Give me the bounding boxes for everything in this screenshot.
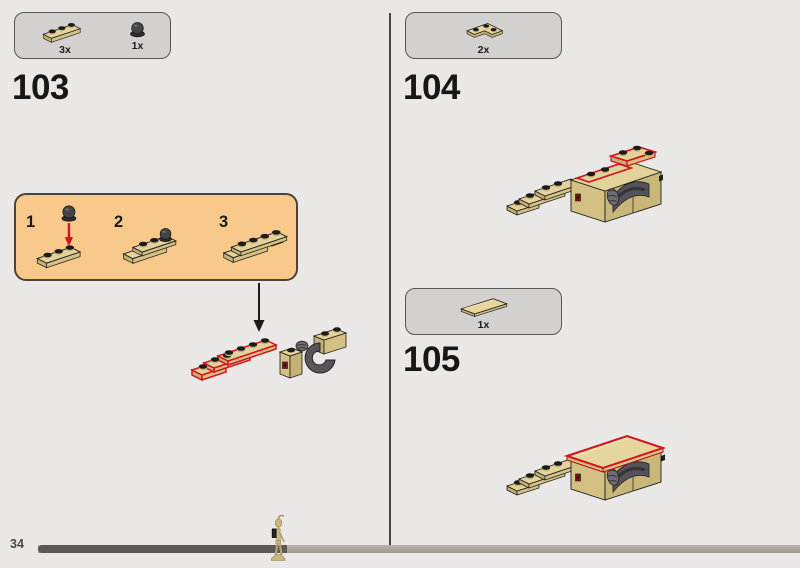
substep-2-illustration [116,205,202,273]
step-number-104: 104 [403,70,460,105]
progress-fill [38,545,287,553]
parts-box-103: 3x 1x [14,12,171,59]
plate-1x3-tan-icon [37,15,93,44]
part-item: 2x [460,16,508,56]
assembly-104-illustration [503,140,668,245]
corner-plate-2x2-tan-icon [460,16,508,44]
part-count: 1x [132,41,144,52]
parts-box-105: 1x [405,288,562,335]
part-count: 3x [59,45,71,56]
assembly-103-illustration [188,310,348,398]
part-item: 1x [456,292,512,331]
assembly-105-illustration [503,418,668,518]
substep-3-illustration [218,209,302,272]
dark-round-stud-icon [127,19,148,40]
battle-droid-progress-marker[interactable] [265,513,291,563]
part-item: 1x [127,19,148,52]
tile-2x4-tan-icon [456,292,512,319]
parts-box-104: 2x [405,12,562,59]
part-item: 3x [37,15,93,56]
substep-1-illustration [28,199,108,277]
part-count: 2x [478,45,490,56]
part-count: 1x [478,320,490,331]
column-divider [389,13,391,546]
page-number: 34 [10,538,24,551]
progress-bar[interactable] [38,545,800,553]
step-number-103: 103 [12,70,69,105]
substep-callout: 1 2 3 [14,193,298,281]
step-number-105: 105 [403,342,460,377]
